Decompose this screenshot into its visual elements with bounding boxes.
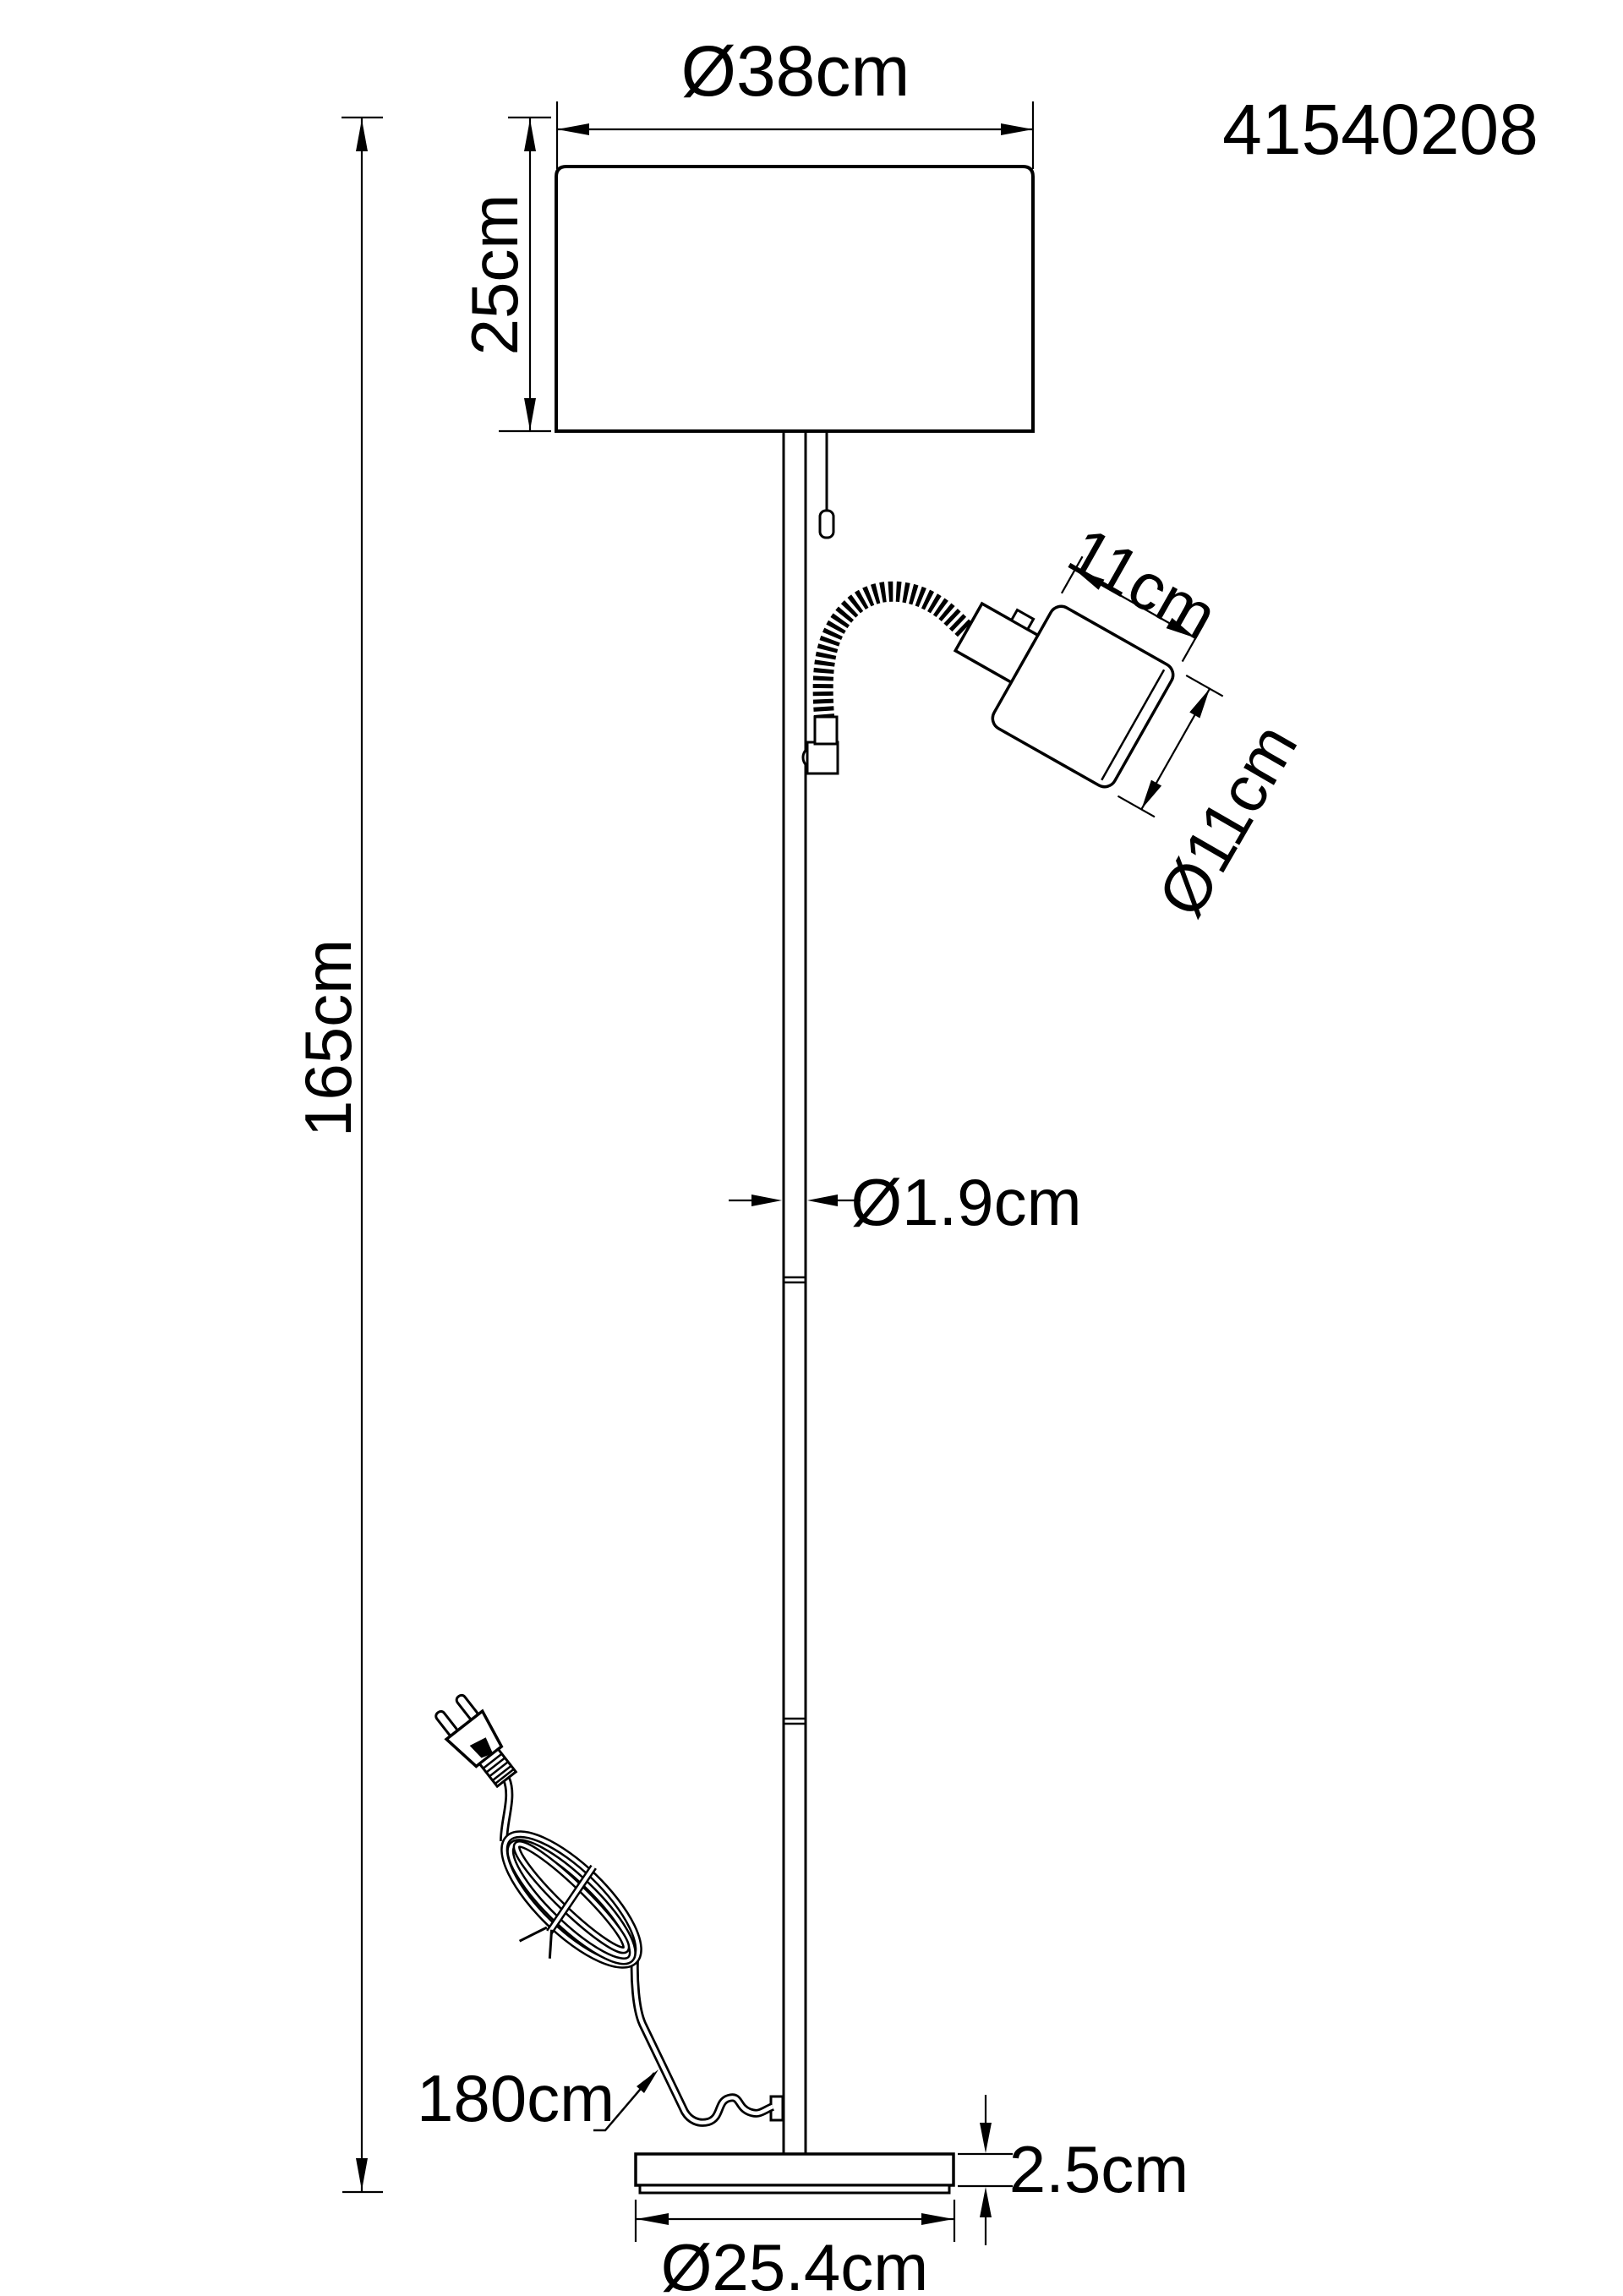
base <box>636 2154 954 2193</box>
dim-shade-diameter <box>557 101 1033 169</box>
pole <box>783 431 806 2154</box>
label-base-height: 2.5cm <box>1009 2136 1189 2202</box>
label-pole-diameter: Ø1.9cm <box>850 1169 1081 1235</box>
label-cable-length: 180cm <box>417 2065 615 2131</box>
gooseneck-arm <box>803 592 972 774</box>
label-base-diameter: Ø25.4cm <box>661 2234 928 2296</box>
dim-base-height <box>958 2095 1013 2245</box>
technical-drawing-page: 41540208 Ø38cm 25cm 165cm 11cm Ø11cm Ø1.… <box>0 0 1623 2296</box>
part-number-label: 41540208 <box>1222 94 1538 165</box>
dim-total-height <box>342 118 383 2192</box>
label-shade-diameter: Ø38cm <box>681 36 910 107</box>
lamp-line-art <box>0 0 1623 2296</box>
label-shade-height: 25cm <box>462 194 527 356</box>
shade <box>556 167 1033 431</box>
label-total-height: 165cm <box>295 939 361 1137</box>
dim-pole-diameter <box>729 1194 861 1206</box>
pull-cord <box>820 431 833 538</box>
